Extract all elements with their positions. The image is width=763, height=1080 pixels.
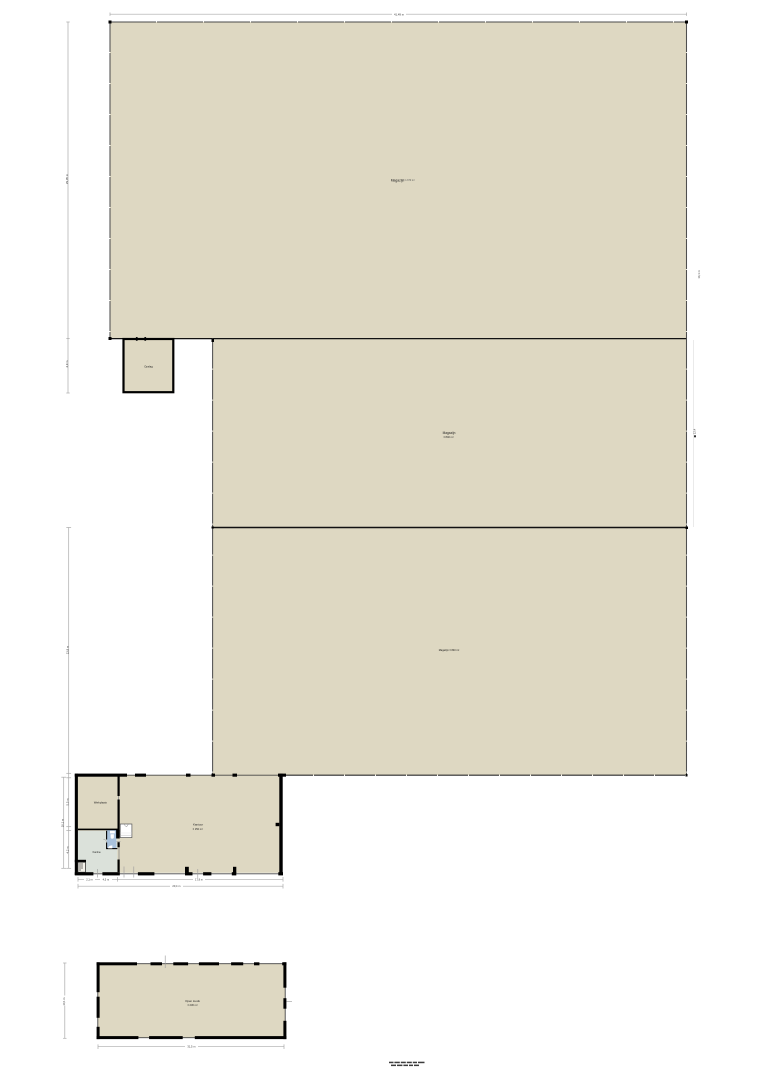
svg-text:± 1.670 m²: ± 1.670 m² xyxy=(403,179,415,182)
svg-text:Magazijn: Magazijn xyxy=(443,431,456,435)
svg-text:31,5 m: 31,5 m xyxy=(187,1045,195,1049)
svg-text:20,4 m: 20,4 m xyxy=(172,884,180,888)
svg-text:Opslag: Opslag xyxy=(144,364,153,368)
svg-text:Open loods: Open loods xyxy=(185,999,200,1003)
svg-text:2,1 m: 2,1 m xyxy=(86,877,93,881)
svg-text:41,49 m: 41,49 m xyxy=(394,12,405,16)
svg-text:10,1 m: 10,1 m xyxy=(62,998,66,1006)
svg-text:5,5 m: 5,5 m xyxy=(66,798,70,806)
svg-text:4,2 m: 4,2 m xyxy=(66,846,70,854)
svg-text:Magazijn ± 840 m²: Magazijn ± 840 m² xyxy=(439,649,460,652)
svg-text:4,9 m: 4,9 m xyxy=(65,360,69,368)
svg-text:Werkplaats: Werkplaats xyxy=(94,800,108,804)
svg-text:± 840 m²: ± 840 m² xyxy=(443,435,453,439)
svg-text:Kantoor: Kantoor xyxy=(193,823,203,827)
svg-text:4,5 m: 4,5 m xyxy=(103,877,110,881)
svg-text:16,1 m: 16,1 m xyxy=(697,269,701,278)
svg-text:Kantine: Kantine xyxy=(93,851,102,854)
svg-text:± 230 m²: ± 230 m² xyxy=(187,1003,197,1007)
svg-text:13,8 m: 13,8 m xyxy=(66,645,70,654)
svg-text:± 150 m²: ± 150 m² xyxy=(193,827,203,831)
svg-text:10,1 m: 10,1 m xyxy=(61,818,65,827)
svg-text:17,9 m: 17,9 m xyxy=(195,877,203,881)
svg-text:12,4: 12,4 xyxy=(692,428,696,434)
svg-text:29,05 m: 29,05 m xyxy=(65,173,69,184)
